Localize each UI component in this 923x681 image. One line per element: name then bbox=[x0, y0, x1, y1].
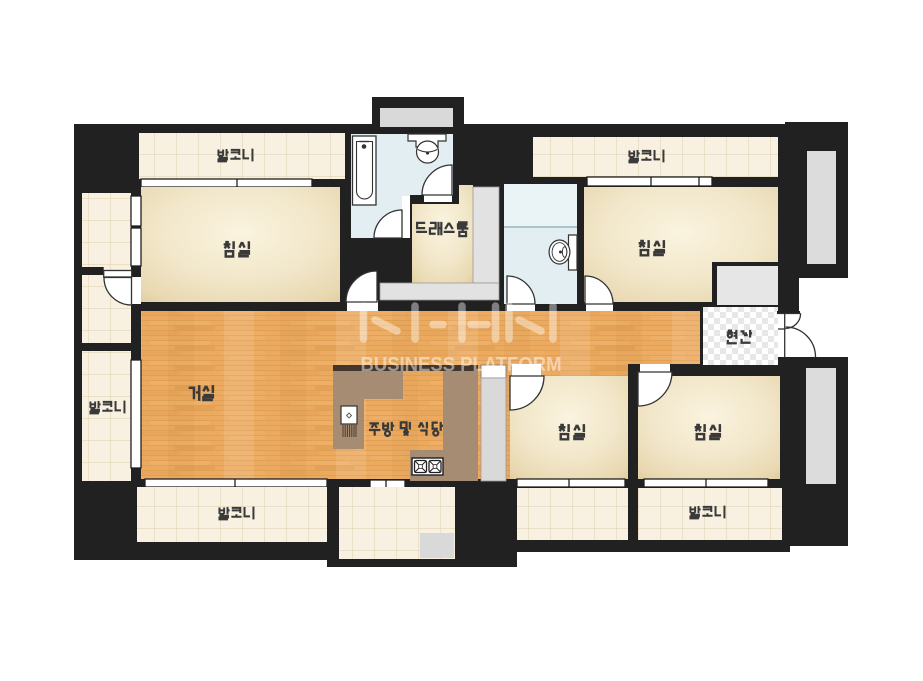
svg-text:BUSINESS PLATFORM: BUSINESS PLATFORM bbox=[361, 354, 562, 376]
